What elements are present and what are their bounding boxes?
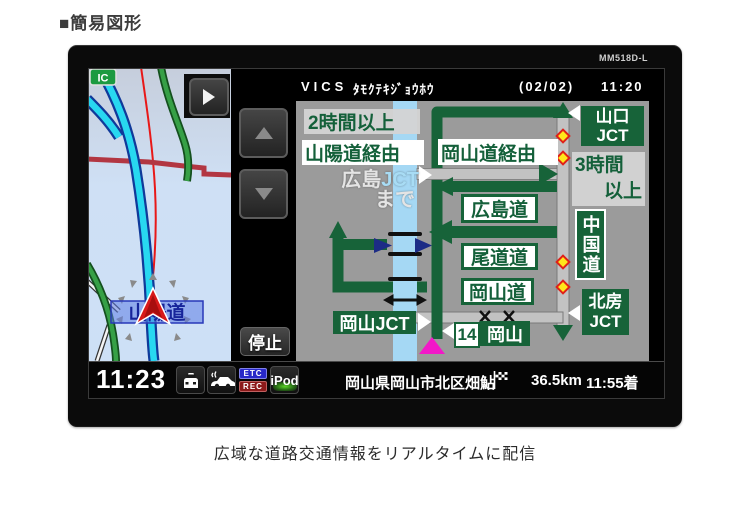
crossroad-arrow-right — [415, 238, 432, 253]
stop-button[interactable]: 停止 — [240, 327, 290, 356]
nav-screen: 山陽道 IC VICS ﾀﾓｸﾃｷｼﾞｮｳﾎｳ (02/02) 11:20 — [88, 68, 665, 399]
map-next-button[interactable] — [189, 78, 229, 116]
exit-number-box: 14 — [454, 322, 480, 348]
corridor-road — [557, 113, 569, 327]
scroll-up-button[interactable] — [239, 108, 288, 158]
road-box-chugoku: 中国道 — [575, 209, 606, 280]
etc-badge: ETC — [239, 368, 267, 379]
road-box-onomichi: 尾道道 — [461, 243, 538, 270]
loop-up-arrow — [329, 221, 347, 238]
page-title: ■簡易図形 — [59, 9, 142, 34]
svg-text:IC: IC — [98, 73, 109, 85]
link-road-gray — [417, 169, 557, 180]
header-time: 11:20 — [601, 79, 644, 94]
route-diagram-panel: 2時間以上 山陽道経由 広島JCT まで 岡山道経由 広島道 尾道道 岡山道 山… — [296, 101, 649, 361]
device-model-label: MM518D-L — [599, 53, 648, 63]
header-info-type: ﾀﾓｸﾃｷｼﾞｮｳﾎｳ — [353, 79, 435, 98]
duration-label-left: 2時間以上 — [304, 109, 420, 134]
ipod-label: iPod — [270, 373, 298, 388]
destination-label: 広島JCT まで — [334, 170, 419, 210]
car-communication-icon — [209, 370, 235, 390]
header-page-indicator: (02/02) — [519, 79, 574, 94]
exit-pointer — [442, 323, 454, 339]
duration-label-right: 3時間 以上 — [572, 152, 645, 206]
arrival-time: 11:55着 — [586, 372, 639, 393]
jct-box-hokubo: 北房JCT — [582, 289, 629, 335]
nav-device-bezel: MM518D-L — [68, 45, 682, 427]
scroll-down-button[interactable] — [239, 169, 288, 219]
down-arrow-icon — [255, 188, 273, 200]
destination-name: 広島 — [341, 169, 381, 191]
car-front-icon — [180, 370, 202, 390]
status-bar: 11:23 ETC REC — [89, 361, 664, 398]
etc-rec-tile: ETC REC — [238, 366, 268, 394]
exit-name-box: 岡山 — [480, 321, 530, 346]
ic-badge: IC — [90, 69, 116, 85]
car-comm-tile — [207, 366, 236, 394]
car-status-tile — [176, 366, 205, 394]
thick-route-arrow-body — [452, 226, 557, 238]
road-box-hiroshima: 広島道 — [461, 194, 538, 223]
via-okayama-label: 岡山道経由 — [438, 139, 558, 165]
header-system: VICS — [301, 79, 347, 94]
via-sanyo-label: 山陽道経由 — [302, 140, 424, 165]
play-icon — [203, 89, 215, 105]
caption-text: 広域な道路交通情報をリアルタイムに配信 — [0, 440, 750, 464]
distance-to-destination: 36.5km — [531, 372, 582, 389]
yamaguchi-jct-pointer — [568, 105, 580, 121]
destination-flag-icon — [492, 371, 509, 389]
destination-suffix: まで — [375, 189, 415, 211]
up-arrow-icon — [255, 127, 273, 139]
destination-jct: JCT — [381, 169, 419, 191]
status-clock: 11:23 — [96, 364, 166, 395]
jct-box-okayama: 岡山JCT — [333, 311, 416, 334]
rec-badge: REC — [239, 381, 267, 392]
hokubo-jct-pointer — [568, 305, 580, 321]
current-location: 岡山県岡山市北区畑鮎 — [345, 372, 495, 393]
link-road-green — [450, 181, 557, 192]
jct-box-yamaguchi: 山口JCT — [581, 106, 644, 146]
road-box-okayama: 岡山道 — [461, 278, 534, 305]
ipod-tile: iPod — [270, 366, 299, 394]
corridor-bottom-arrow — [553, 325, 573, 341]
current-position-icon — [419, 337, 445, 354]
